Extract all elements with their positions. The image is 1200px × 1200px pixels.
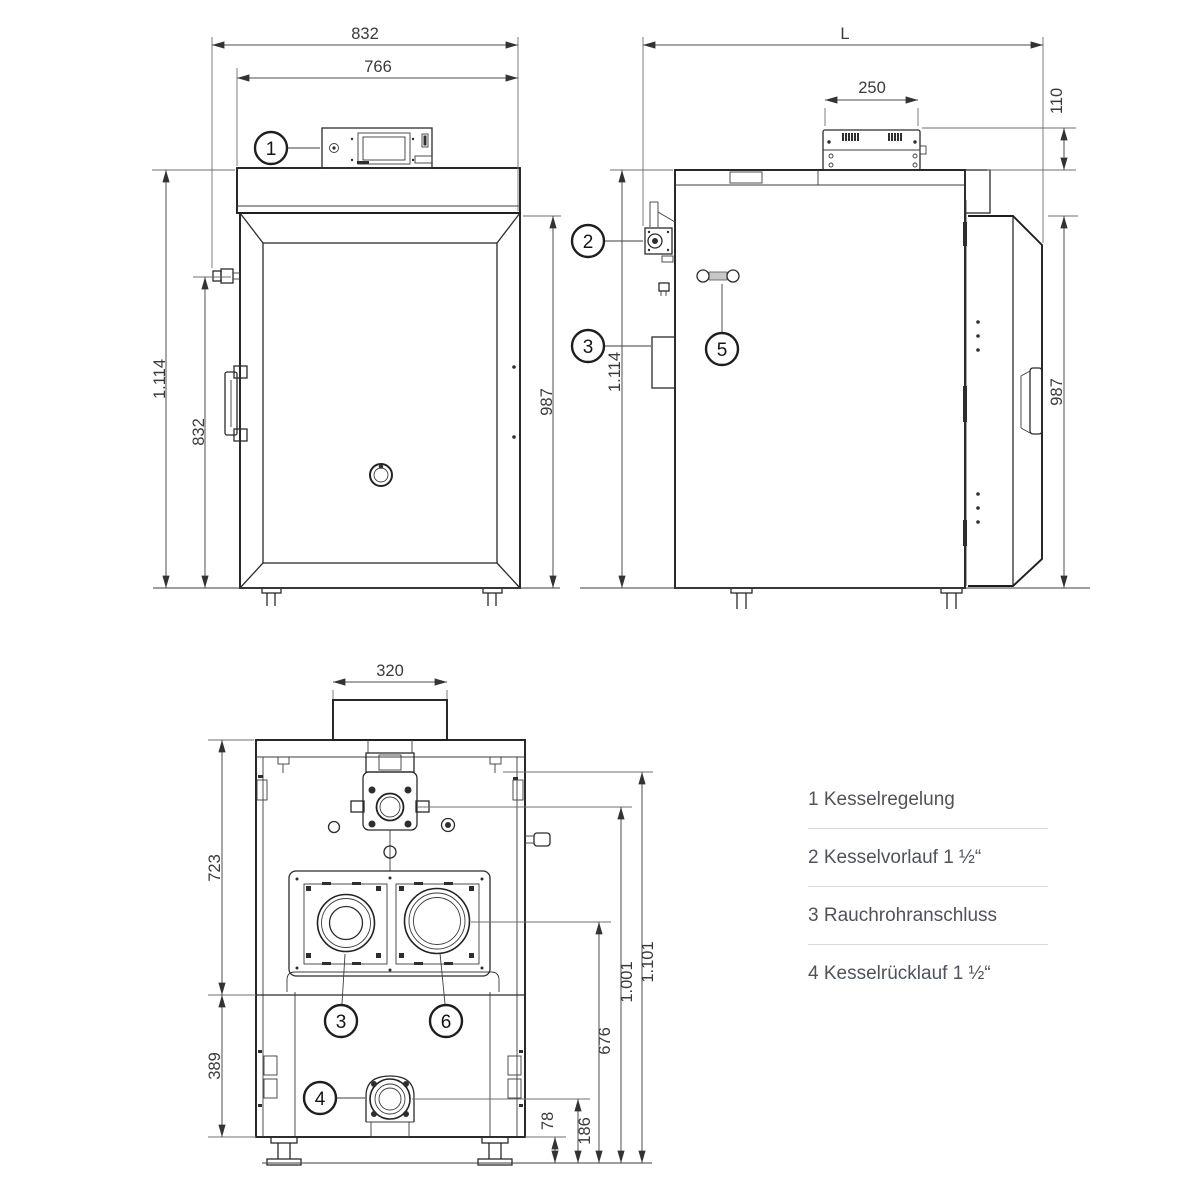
legend-item-2-label: Kesselvorlauf 1 ½“	[824, 847, 981, 868]
legend-item-1: 1 Kesselregelung	[808, 771, 1048, 829]
front-door-handle	[225, 366, 247, 441]
rear-dimensions: 320 723 389 676 1.001 1.101 78 186	[206, 662, 657, 1163]
callout-6-number: 6	[441, 1012, 452, 1033]
side-callout-2: 2	[572, 225, 643, 257]
legend-item-1-number: 1	[808, 789, 819, 810]
rear-boiler-body	[256, 740, 525, 1137]
dim-rear-flow-center: 1.001	[618, 961, 636, 1002]
callout-5-number: 5	[717, 340, 728, 361]
dim-side-length: L	[840, 25, 849, 43]
side-door-handle	[1021, 368, 1042, 434]
legend-item-2: 2 Kesselvorlauf 1 ½“	[808, 829, 1048, 887]
side-control-box	[823, 130, 926, 170]
side-front-door	[963, 200, 1042, 586]
rear-callout-4: 4	[304, 1082, 365, 1114]
front-dimensions: 832 766 1.114 832 987	[151, 25, 561, 588]
dim-rear-return-center: 186	[576, 1117, 594, 1145]
legend: 1 Kesselregelung 2 Kesselvorlauf 1 ½“ 3 …	[808, 771, 1048, 1002]
dim-rear-top-edge: 1.101	[639, 941, 657, 982]
dim-front-body-width: 766	[364, 58, 392, 76]
rear-flow-flange	[329, 740, 455, 871]
dim-rear-flue-width: 320	[376, 662, 404, 680]
legend-item-3-label: Rauchrohranschluss	[824, 905, 997, 926]
dim-side-box-height: 110	[1048, 88, 1066, 114]
dim-front-total-width: 832	[351, 25, 379, 43]
callout-2-number: 2	[583, 232, 594, 253]
dim-side-box-width: 250	[858, 79, 886, 97]
callout-3-number: 3	[583, 337, 594, 358]
legend-item-1-label: Kesselregelung	[824, 789, 955, 810]
front-drain-fitting	[213, 269, 240, 283]
dim-front-side-height: 832	[190, 418, 208, 446]
legend-item-4-label: Kesselrücklauf 1 ½“	[824, 963, 991, 984]
front-view: 1 832 766 1.114 832 987	[151, 25, 561, 606]
legend-item-3: 3 Rauchrohranschluss	[808, 887, 1048, 945]
front-boiler-body	[237, 168, 520, 588]
boiler-control-panel	[322, 128, 432, 168]
callout-1-number: 1	[266, 139, 277, 160]
side-boiler-body	[675, 170, 990, 588]
rear-flue-box	[333, 700, 447, 740]
dim-front-total-height: 1.114	[151, 359, 169, 399]
legend-item-2-number: 2	[808, 847, 819, 868]
callout-4-number: 4	[315, 1089, 326, 1110]
legend-item-4-number: 4	[808, 963, 819, 984]
legend-item-4: 4 Kesselrücklauf 1 ½“	[808, 945, 1048, 1002]
rear-view: 3 6 4	[206, 662, 657, 1165]
dim-rear-flue-center: 676	[596, 1027, 614, 1055]
dim-rear-lower-height: 389	[206, 1052, 224, 1080]
side-flue-stub	[652, 337, 675, 388]
dim-rear-upper-height: 723	[206, 854, 224, 882]
boiler-dimension-drawing: 1 832 766 1.114 832 987	[0, 0, 1200, 1200]
callout-3-number-rear: 3	[336, 1012, 347, 1033]
rear-legs	[267, 1137, 512, 1165]
dim-rear-leg-height: 78	[539, 1112, 557, 1130]
dim-side-total-height: 1.114	[606, 352, 624, 392]
rear-side-handle	[525, 833, 550, 846]
rear-flue-openings	[289, 871, 490, 976]
side-dimensions: L 250 110 1.114 987	[606, 25, 1078, 588]
dim-side-door-height: 987	[1048, 378, 1066, 406]
side-legs	[731, 588, 962, 609]
side-callout-5: 5	[706, 284, 738, 365]
legend-item-3-number: 3	[808, 905, 819, 926]
front-callout-1: 1	[255, 132, 320, 164]
front-legs	[262, 588, 502, 606]
rear-return-flange	[366, 1076, 414, 1137]
side-lever-handle	[697, 270, 739, 282]
side-view: 2 3 5 L 250 110	[572, 25, 1090, 609]
front-peephole	[370, 464, 392, 486]
side-flow-fitting	[645, 202, 675, 296]
dim-front-door-height: 987	[538, 388, 556, 416]
